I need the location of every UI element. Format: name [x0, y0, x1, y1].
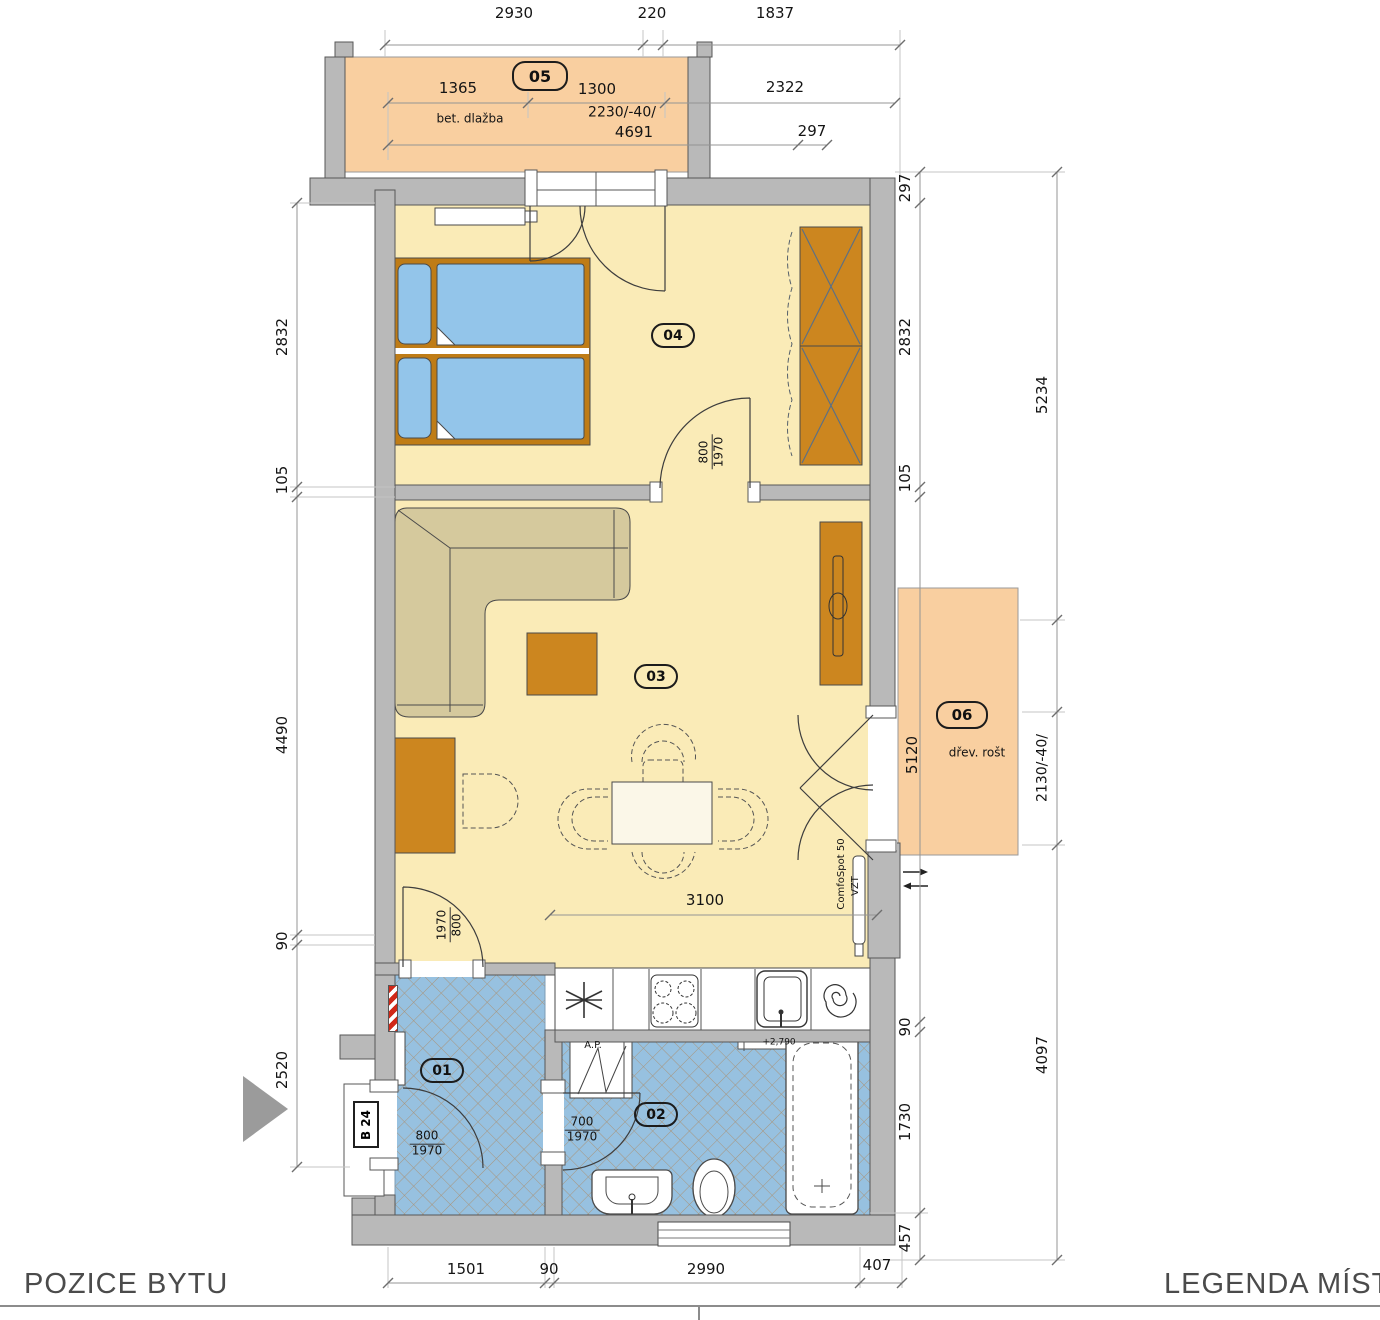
floor-plan-drawing	[0, 0, 1380, 1320]
wall-left	[375, 190, 395, 1085]
apartment-number: B 24	[359, 1109, 373, 1139]
shelf	[435, 208, 525, 225]
dim-label: 2322	[766, 80, 804, 96]
room-badge-living-03: 03	[634, 664, 678, 689]
balcony-pier	[688, 57, 710, 187]
door-size-label: 8001970	[410, 1130, 445, 1159]
balcony-pier	[325, 57, 345, 187]
room-badge-balcony-05: 05	[512, 61, 568, 91]
door-size-label: 7001970	[565, 1116, 600, 1145]
footer-left-title: POZICE BYTU	[24, 1268, 228, 1301]
floor-material-label: dřev. rošt	[949, 747, 1005, 760]
living-hall-door-opening	[399, 960, 485, 978]
bathtub-icon	[786, 1036, 858, 1214]
bathroom-window	[658, 1222, 790, 1246]
airflow-arrows-icon	[903, 869, 928, 890]
washer-label: A.P.	[584, 1041, 602, 1052]
dim-label: 1300	[578, 82, 616, 98]
shelf-knob	[525, 211, 537, 222]
dim-label: 5234	[1035, 376, 1051, 414]
floor-plan-canvas: B 24 05 04 03 01 02 06 2930 220 1837 136…	[0, 0, 1380, 1320]
level-label: +2,790	[762, 1038, 795, 1047]
wall-vent-niche	[868, 843, 900, 958]
dim-label: 5120	[905, 736, 921, 774]
wall-stub	[697, 42, 712, 57]
dim-label: 90	[539, 1262, 558, 1278]
mattress-icon	[437, 264, 584, 345]
dim-label: 2832	[898, 318, 914, 356]
dim-label: 1730	[898, 1103, 914, 1141]
pillow-icon	[398, 264, 431, 344]
entry-door-leaf	[395, 1032, 405, 1085]
door-size-label: 1970800	[436, 908, 465, 943]
mattress-icon	[437, 358, 584, 439]
dim-label: 407	[863, 1258, 892, 1274]
room-badge-bedroom-04: 04	[651, 323, 695, 348]
electrical-panel-icon	[388, 985, 398, 1032]
dim-label: 1501	[447, 1262, 485, 1278]
level-label: 2230/-40/	[588, 106, 656, 121]
dim-label: 90	[898, 1017, 914, 1036]
apartment-number-box: B 24	[353, 1101, 379, 1148]
footer-right-title: LEGENDA MÍSTN	[1164, 1268, 1380, 1301]
balcony-door	[525, 170, 667, 206]
wall-stub	[335, 42, 353, 57]
dim-label: 297	[798, 124, 827, 140]
dim-label: 457	[898, 1224, 914, 1253]
level-label: 2130/-40/	[1036, 734, 1051, 802]
desk-icon	[390, 738, 455, 853]
dim-label: 105	[898, 464, 914, 493]
dim-label: 2832	[275, 318, 291, 356]
washbasin-icon	[592, 1170, 672, 1214]
vent-system-label: VZT	[851, 876, 862, 896]
kitchen-counter	[555, 968, 870, 1032]
dim-label: 2990	[687, 1262, 725, 1278]
dim-label: 1365	[439, 81, 477, 97]
hallway-tiles	[395, 975, 545, 1215]
dining-table-icon	[612, 782, 712, 844]
dim-label: 4490	[275, 716, 291, 754]
vent-unit-label: ComfoSpot 50	[837, 838, 848, 909]
wall-bedroom-living	[395, 485, 870, 500]
pillow-icon	[398, 358, 431, 438]
dim-label: 105	[275, 466, 291, 495]
room-badge-bath-02: 02	[634, 1102, 678, 1127]
wall-kitchen-bath	[555, 1030, 870, 1042]
vent-unit-icon	[853, 856, 865, 956]
beds-icon	[393, 258, 590, 445]
dim-label: 220	[638, 6, 667, 22]
bedroom-door-opening	[650, 482, 760, 502]
dim-label: 90	[275, 931, 291, 950]
floor-material-label: bet. dlažba	[437, 113, 504, 126]
tv-board-icon	[820, 522, 862, 685]
footer-divider	[0, 1305, 1380, 1307]
french-door-opening	[866, 706, 897, 852]
coffee-table-icon	[527, 633, 597, 695]
dim-label: 4691	[615, 125, 653, 141]
footer-center-tick	[698, 1305, 700, 1320]
dim-label: 1837	[756, 6, 794, 22]
dim-label: 2930	[495, 6, 533, 22]
bath-door-opening	[541, 1080, 565, 1165]
dim-label: 2520	[275, 1051, 291, 1089]
dim-label: 297	[898, 174, 914, 203]
room-badge-hall-01: 01	[420, 1058, 464, 1083]
wall-bottom	[352, 1215, 895, 1245]
dim-label: 3100	[686, 893, 724, 909]
room-badge-balcony-06: 06	[936, 701, 988, 729]
wall-step	[340, 1035, 375, 1059]
door-size-label: 8001970	[698, 435, 727, 470]
dim-label: 4097	[1035, 1036, 1051, 1074]
